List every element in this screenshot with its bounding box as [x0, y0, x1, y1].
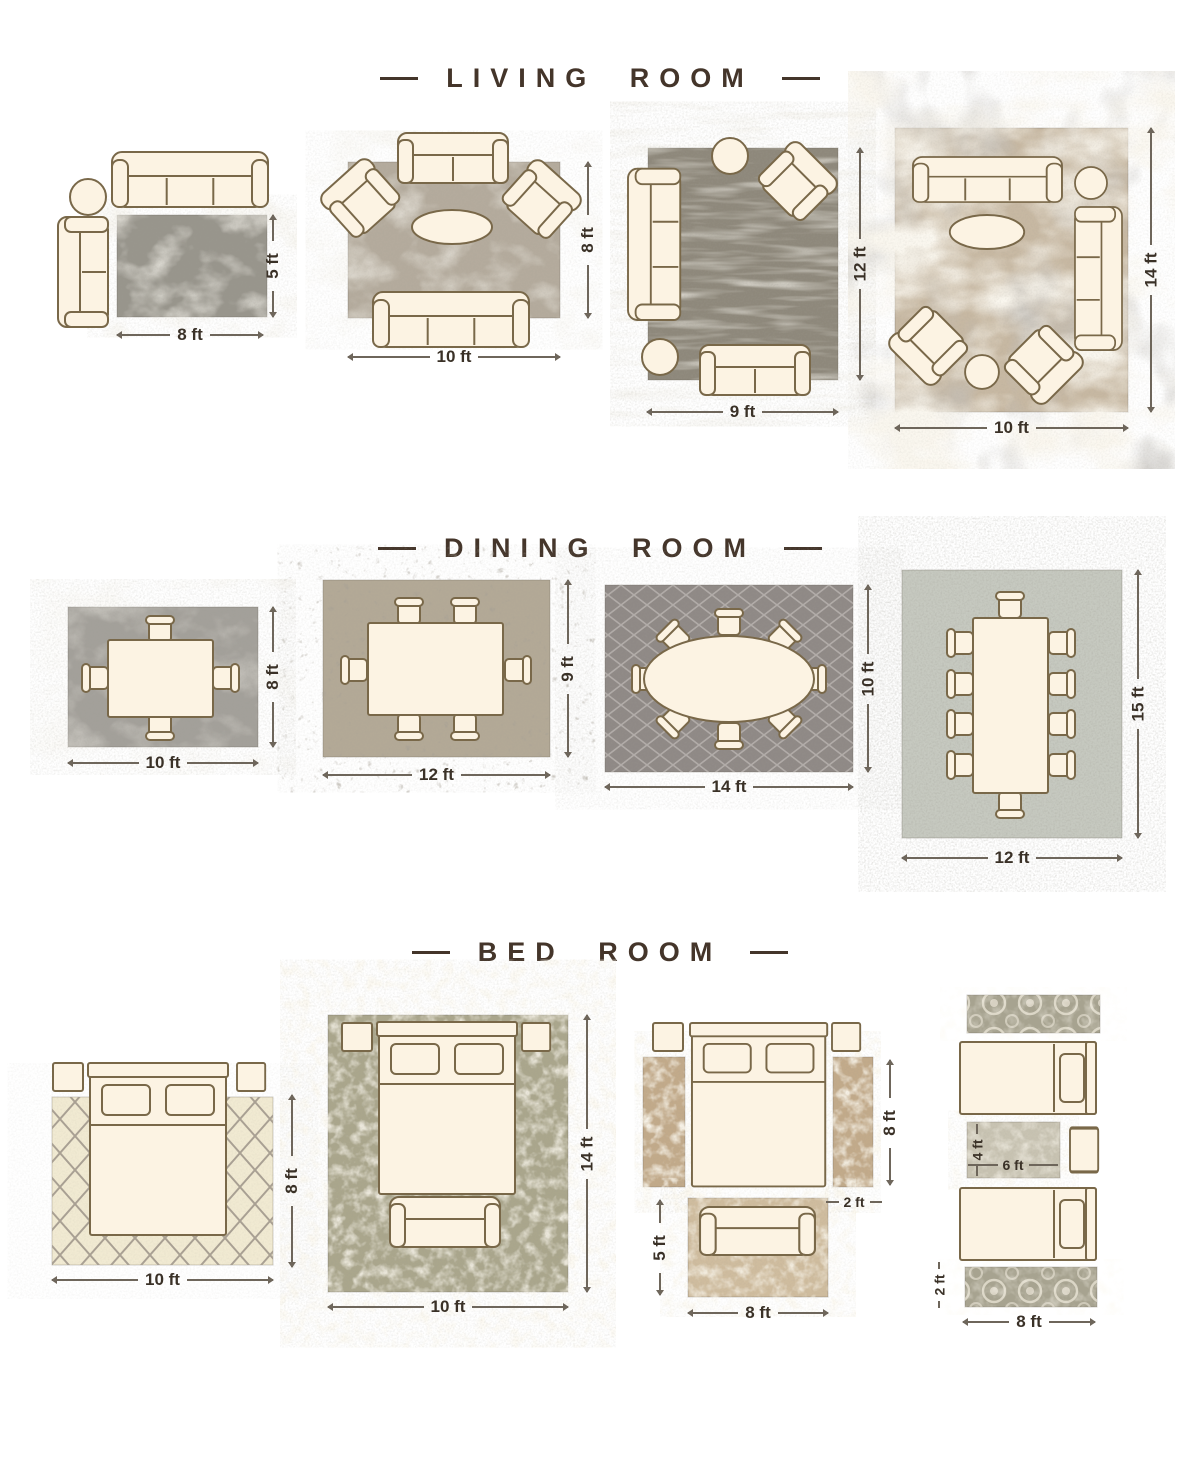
dim-dining2-width: 12 ft — [323, 765, 550, 785]
loveseat — [700, 1207, 815, 1255]
bed — [88, 1063, 228, 1235]
dining-chair — [947, 670, 973, 698]
dim-living4-height: 14 ft — [1140, 128, 1162, 412]
dim-dining3-width: 14 ft — [605, 777, 853, 797]
title-dash-right — [784, 547, 822, 550]
section-title-living-room: LIVING ROOM — [0, 58, 1200, 98]
side-runner-rug — [643, 1057, 685, 1187]
side-table — [965, 355, 999, 389]
dining-chair — [715, 609, 743, 635]
dining-layout-3 — [595, 575, 860, 790]
dining-chair — [947, 751, 973, 779]
dim-bed4-runner-width: 8 ft — [963, 1312, 1095, 1332]
dining-table — [368, 623, 503, 715]
dining-chair — [947, 629, 973, 657]
runner-rug — [967, 995, 1100, 1033]
dining-chair — [505, 656, 531, 684]
dining-layout-1 — [40, 590, 290, 780]
side-runner-rug — [833, 1057, 873, 1187]
nightstand — [53, 1063, 83, 1091]
dining-room-title: DINING ROOM — [444, 533, 756, 564]
dining-chair — [82, 664, 108, 692]
bed-layout-2 — [310, 1000, 590, 1320]
nightstand — [653, 1023, 683, 1051]
rug-size-guide: LIVING ROOM DINING ROOM BED ROOM — [0, 0, 1200, 1467]
dining-chair — [395, 714, 423, 740]
dim-bed3-footrug-width: 8 ft — [688, 1303, 828, 1323]
dim-living2-height: 8 ft — [577, 162, 599, 318]
runner-rug — [965, 1267, 1097, 1307]
side-table — [1075, 167, 1107, 199]
coffee-table — [412, 210, 492, 244]
dim-dining1-width: 10 ft — [68, 753, 258, 773]
dim-bed3-footrug-height: 5 ft — [649, 1200, 671, 1295]
twin-bed — [960, 1042, 1096, 1114]
rug — [117, 215, 267, 317]
dim-living3-width: 9 ft — [647, 402, 838, 422]
dining-layout-4 — [890, 560, 1130, 860]
dining-chair — [213, 664, 239, 692]
dining-chair — [996, 592, 1024, 618]
sofa — [373, 292, 529, 347]
bed-room-title: BED ROOM — [478, 937, 723, 968]
dim-dining3-height: 10 ft — [857, 585, 879, 772]
nightstand — [832, 1023, 860, 1051]
dining-chair — [395, 598, 423, 624]
sofa — [112, 152, 268, 207]
coffee-table — [950, 215, 1024, 249]
loveseat — [58, 217, 108, 327]
dining-chair — [1049, 629, 1075, 657]
dining-chair — [1049, 670, 1075, 698]
nightstand — [1070, 1128, 1098, 1172]
dim-bed3-runner-width: 2 ft — [826, 1193, 882, 1211]
dim-dining4-height: 15 ft — [1127, 570, 1149, 838]
dim-living2-width: 10 ft — [348, 347, 560, 367]
bed-layout-1 — [30, 1000, 300, 1290]
dining-table — [973, 618, 1048, 793]
dim-living3-height: 12 ft — [849, 148, 871, 380]
side-table — [712, 138, 748, 174]
nightstand — [237, 1063, 265, 1091]
living-layout-2 — [330, 120, 590, 370]
title-dash-right — [782, 77, 820, 80]
twin-bed — [960, 1188, 1096, 1260]
dining-chair — [341, 656, 367, 684]
dining-chair — [451, 714, 479, 740]
dim-bed4-centerrug-width: 6 ft — [968, 1156, 1058, 1174]
dining-chair — [996, 792, 1024, 818]
loveseat — [700, 345, 810, 395]
dining-chair — [1049, 710, 1075, 738]
dim-bed1-height: 8 ft — [281, 1095, 303, 1267]
dim-bed3-runner-height: 8 ft — [879, 1060, 901, 1185]
dim-dining1-height: 8 ft — [262, 607, 284, 747]
dim-dining4-width: 12 ft — [902, 848, 1122, 868]
bed — [377, 1022, 517, 1194]
title-dash-left — [378, 547, 416, 550]
dim-living1-height: 5 ft — [262, 215, 284, 317]
living-layout-1 — [40, 130, 300, 355]
title-dash-left — [380, 77, 418, 80]
dim-living1-width: 8 ft — [117, 325, 263, 345]
bench — [390, 1197, 500, 1247]
living-layout-4 — [880, 110, 1170, 440]
side-table — [70, 179, 106, 215]
dining-chair — [715, 723, 743, 749]
title-dash-left — [412, 951, 450, 954]
living-layout-3 — [610, 130, 860, 420]
dining-chair — [1049, 751, 1075, 779]
dim-bed2-height: 14 ft — [576, 1015, 598, 1292]
nightstand — [522, 1023, 550, 1051]
dim-bed2-width: 10 ft — [328, 1297, 568, 1317]
bed — [690, 1023, 827, 1186]
sofa — [913, 157, 1062, 202]
loveseat — [398, 133, 508, 183]
living-room-title: LIVING ROOM — [446, 63, 754, 94]
dining-table — [108, 640, 213, 717]
dim-bed4-runner-height: 2 ft — [929, 1262, 949, 1308]
dining-chair — [947, 710, 973, 738]
dim-bed1-width: 10 ft — [52, 1270, 273, 1290]
title-dash-right — [750, 951, 788, 954]
sofa — [628, 169, 680, 320]
side-table — [642, 339, 678, 375]
section-title-bed-room: BED ROOM — [0, 932, 1200, 972]
nightstand — [342, 1023, 372, 1051]
dining-chair — [451, 598, 479, 624]
dim-living4-width: 10 ft — [895, 418, 1128, 438]
dim-dining2-height: 9 ft — [557, 580, 579, 757]
dining-chair — [146, 616, 174, 642]
oval-dining-table — [644, 636, 814, 722]
dining-layout-2 — [320, 575, 565, 780]
sofa — [1075, 207, 1122, 350]
